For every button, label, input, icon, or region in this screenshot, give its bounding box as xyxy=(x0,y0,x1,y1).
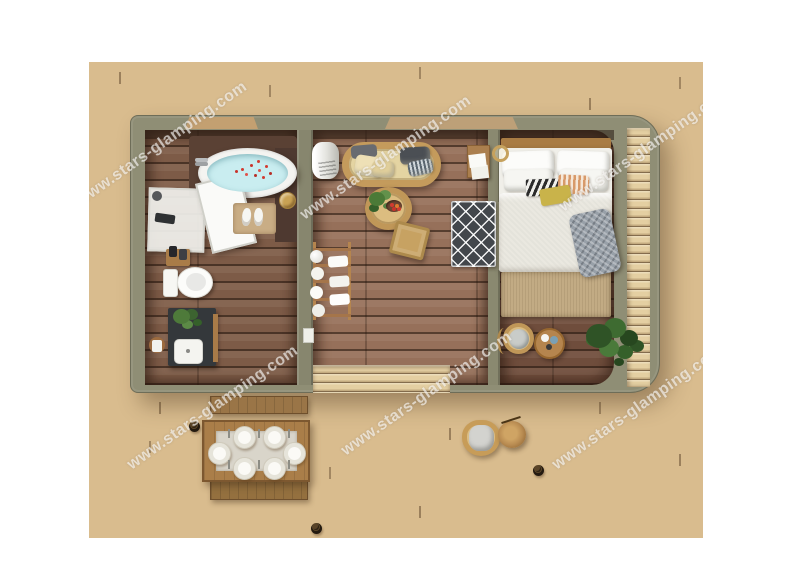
dinner-plate xyxy=(233,426,256,449)
dinner-plate-3 xyxy=(233,457,256,480)
cabin-top-view-photo: www.stars-glamping.com www.stars-glampin… xyxy=(89,62,703,538)
geometric-rug xyxy=(451,201,496,267)
table-lamp xyxy=(492,145,509,162)
sink-drain xyxy=(186,349,190,353)
table-cups xyxy=(541,334,549,342)
partition-living-bedroom-lower xyxy=(488,270,500,385)
sofa-pillow-cream-2 xyxy=(372,160,395,177)
deck-light-2 xyxy=(311,523,322,534)
shower-head-icon xyxy=(152,191,162,201)
patio-door-threshold xyxy=(313,365,450,393)
stump-side-table xyxy=(498,421,526,448)
dining-bench-upper xyxy=(210,396,308,414)
cylinder-vents xyxy=(318,160,337,176)
fruit xyxy=(390,203,394,207)
skylight-bathroom xyxy=(185,117,258,129)
fruit-bowl xyxy=(386,200,402,212)
living-wall-shadow xyxy=(313,130,488,139)
wall-switch xyxy=(303,328,314,343)
stool-cushion xyxy=(509,329,529,349)
vanity-wood-side xyxy=(213,314,218,362)
towel-on-ring xyxy=(152,340,162,352)
towel-roll xyxy=(310,250,323,263)
cutlery xyxy=(228,429,230,438)
deck-plank-seams xyxy=(119,72,121,84)
coffee-table-plant xyxy=(369,192,385,206)
tub-faucet xyxy=(195,158,208,162)
round-side-table xyxy=(534,328,565,359)
skylight-living xyxy=(385,117,518,129)
deck-light-3 xyxy=(533,465,544,476)
flower-petals xyxy=(241,168,244,171)
dinner-plate-4 xyxy=(263,457,286,480)
slipper-right xyxy=(254,208,263,226)
vanity-plant xyxy=(173,309,190,324)
desk-papers xyxy=(468,153,486,168)
fiddle-leaf-plant xyxy=(586,324,612,348)
wall-tray xyxy=(279,192,296,209)
dinner-plate-5 xyxy=(208,442,231,465)
toiletry-bottles xyxy=(169,246,177,257)
dining-bench-lower xyxy=(210,480,308,500)
toilet-seat-inner xyxy=(186,273,206,291)
dinner-plate-2 xyxy=(263,426,286,449)
deck-light xyxy=(189,421,200,432)
towel-ladder-rail-right xyxy=(348,242,351,320)
folded-towel xyxy=(328,255,349,267)
bathtub-water xyxy=(207,154,288,192)
foot-rug xyxy=(501,272,611,317)
porch-plank-strip xyxy=(627,128,650,387)
toilet-tank xyxy=(163,269,178,297)
lounge-chair-cushion xyxy=(469,425,494,451)
dinner-plate-6 xyxy=(283,442,306,465)
